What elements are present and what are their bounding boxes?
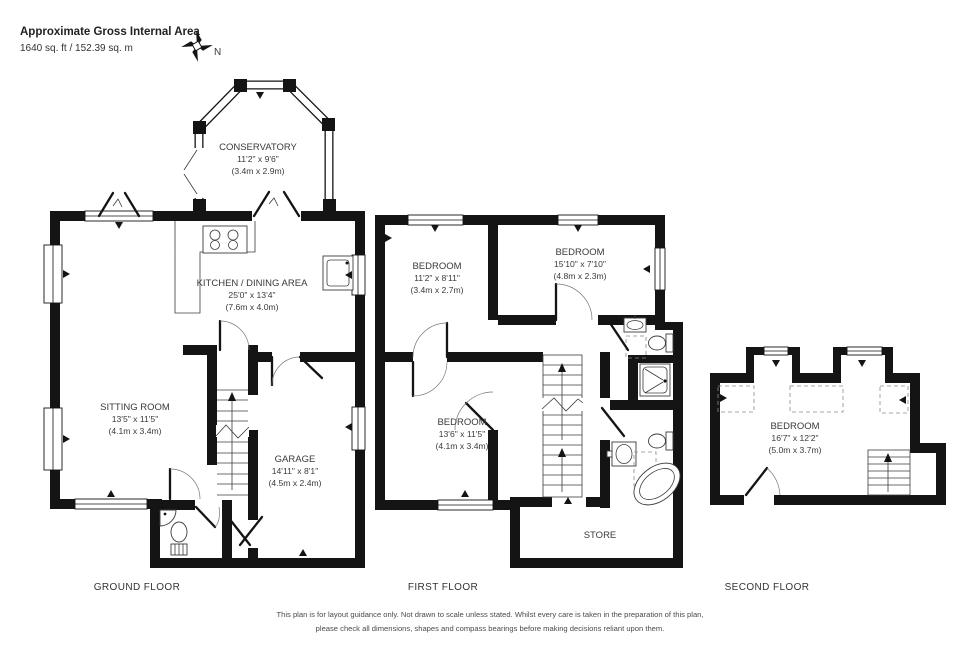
compass-icon [179,28,216,65]
floorplan-svg: N [0,0,980,651]
ground-floor-caption: GROUND FLOOR [94,582,180,593]
bedroom1-dims-ft: 11'2" x 8'11" [414,273,460,283]
window [85,211,153,221]
basin-icon [607,442,636,466]
ground-floor-plan: CONSERVATORY 11'2" x 9'6" (3.4m x 2.9m) … [44,79,365,568]
window [558,215,598,225]
floorplan-page: Approximate Gross Internal Area 1640 sq.… [0,0,980,651]
conservatory-dims-ft: 11'2" x 9'6" [237,154,279,164]
sitting-room-dims-ft: 13'5" x 11'5" [112,414,159,424]
ground-floor-walls [50,211,365,568]
window [847,347,882,355]
conservatory-dims-m: (3.4m x 2.9m) [231,166,284,176]
disclaimer-line-2: please check all dimensions, shapes and … [0,624,980,633]
window [438,500,493,510]
toilet-icon [171,522,187,555]
conservatory-label: CONSERVATORY [219,142,297,153]
second-floor-plan: BEDROOM 16'7" x 12'2" (5.0m x 3.7m) [710,347,946,505]
shower-icon [640,364,670,396]
stairs-icon-first [542,355,583,497]
disclaimer-line-1: This plan is for layout guidance only. N… [0,610,980,619]
conservatory-door-opening [190,148,207,198]
reduced-headroom-dashes [718,386,908,413]
bedroom4-label: BEDROOM [770,421,819,432]
window [44,408,62,470]
garage-label: GARAGE [275,454,316,465]
window [408,215,463,225]
hob-icon [203,226,247,253]
second-floor-doors [746,468,780,495]
toilet-icon [649,432,674,450]
garage-dims-m: (4.5m x 2.4m) [268,478,321,488]
kitchen-dims-m: (7.6m x 4.0m) [225,302,278,312]
window [352,255,365,295]
garage-dims-ft: 14'11" x 8'1" [272,466,319,476]
window [75,499,147,509]
window [655,248,665,290]
kitchen-dims-ft: 25'0" x 13'4" [228,290,275,300]
bedroom1-label: BEDROOM [412,261,461,272]
window [352,407,365,450]
bedroom3-dims-m: (4.1m x 3.4m) [435,441,488,451]
stairs-icon-ground [216,390,249,495]
second-floor-walls [710,347,946,505]
first-floor-caption: FIRST FLOOR [408,582,478,593]
bedroom2-dims-ft: 15'10" x 7'10" [554,259,606,269]
bedroom2-dims-m: (4.8m x 2.3m) [553,271,606,281]
kitchen-label: KITCHEN / DINING AREA [197,278,309,289]
bedroom1-dims-m: (3.4m x 2.7m) [410,285,463,295]
second-floor-caption: SECOND FLOOR [725,582,810,593]
first-floor-plan: BEDROOM 11'2" x 8'11" (3.4m x 2.7m) BEDR… [375,215,688,568]
window [764,347,788,355]
bedroom2-label: BEDROOM [555,247,604,258]
corner-basin-icon [160,510,176,526]
bedroom3-label: BEDROOM [437,417,486,428]
bedroom3-dims-ft: 13'6" x 11'5" [439,429,486,439]
stairs-icon-second [868,450,910,495]
store-label: STORE [584,530,617,541]
sitting-room-dims-m: (4.1m x 3.4m) [108,426,161,436]
window [44,245,62,303]
toilet-icon [649,334,674,352]
second-floor-windows [764,347,882,355]
sitting-room-label: SITTING ROOM [100,402,170,413]
bedroom4-dims-ft: 16'7" x 12'2" [771,433,818,443]
compass-north-label: N [214,47,221,58]
bedroom4-dims-m: (5.0m x 3.7m) [768,445,821,455]
